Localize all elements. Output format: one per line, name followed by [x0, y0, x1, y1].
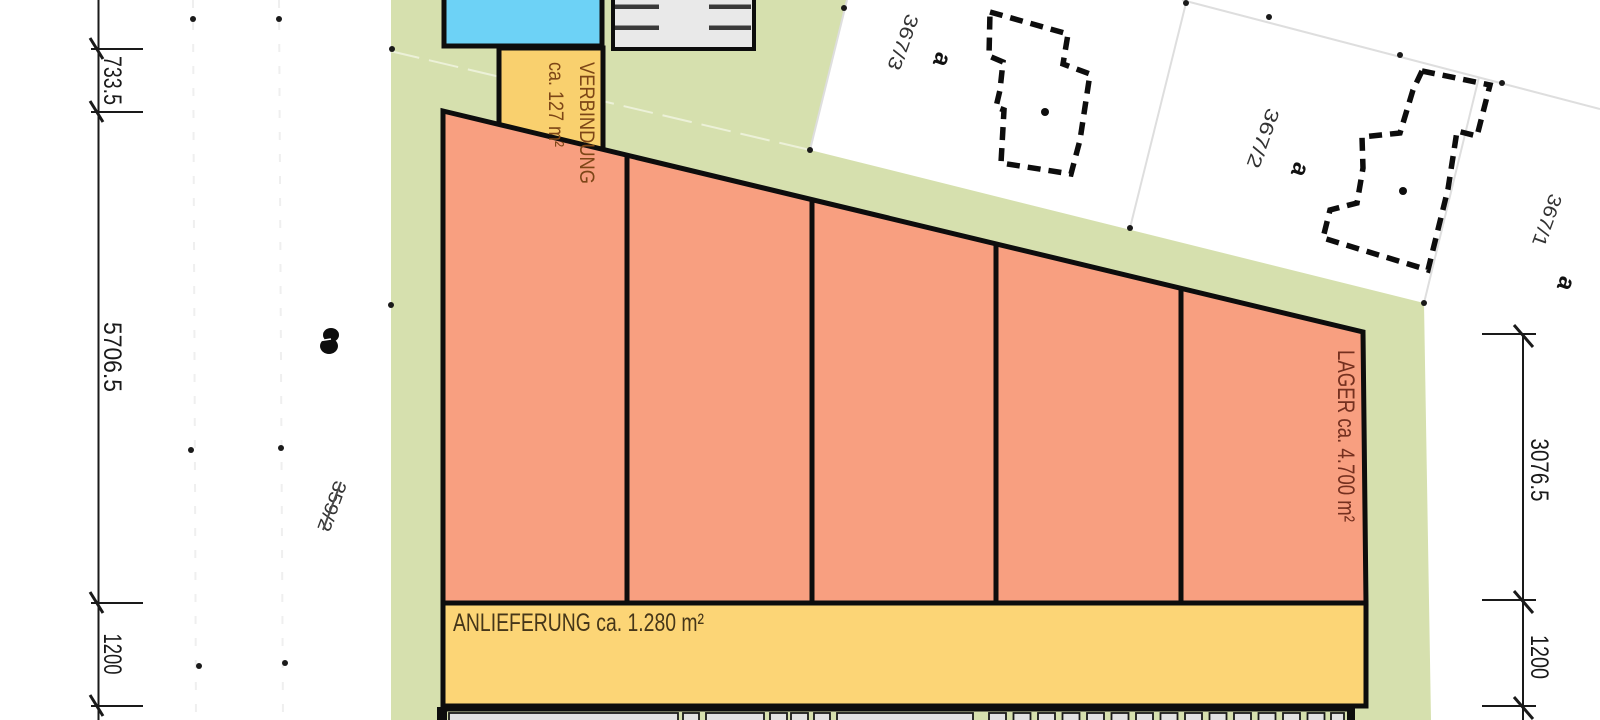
svg-text:1200: 1200 [1525, 635, 1553, 679]
svg-text:3076.5: 3076.5 [1525, 439, 1553, 502]
svg-text:LAGER ca. 4.700 m²: LAGER ca. 4.700 m² [1332, 350, 1359, 522]
svg-text:733.5: 733.5 [98, 56, 126, 105]
svg-text:5706.5: 5706.5 [98, 322, 126, 392]
svg-text:1200: 1200 [98, 634, 126, 675]
svg-text:ANLIEFERUNG ca. 1.280 m²: ANLIEFERUNG ca. 1.280 m² [453, 609, 704, 637]
